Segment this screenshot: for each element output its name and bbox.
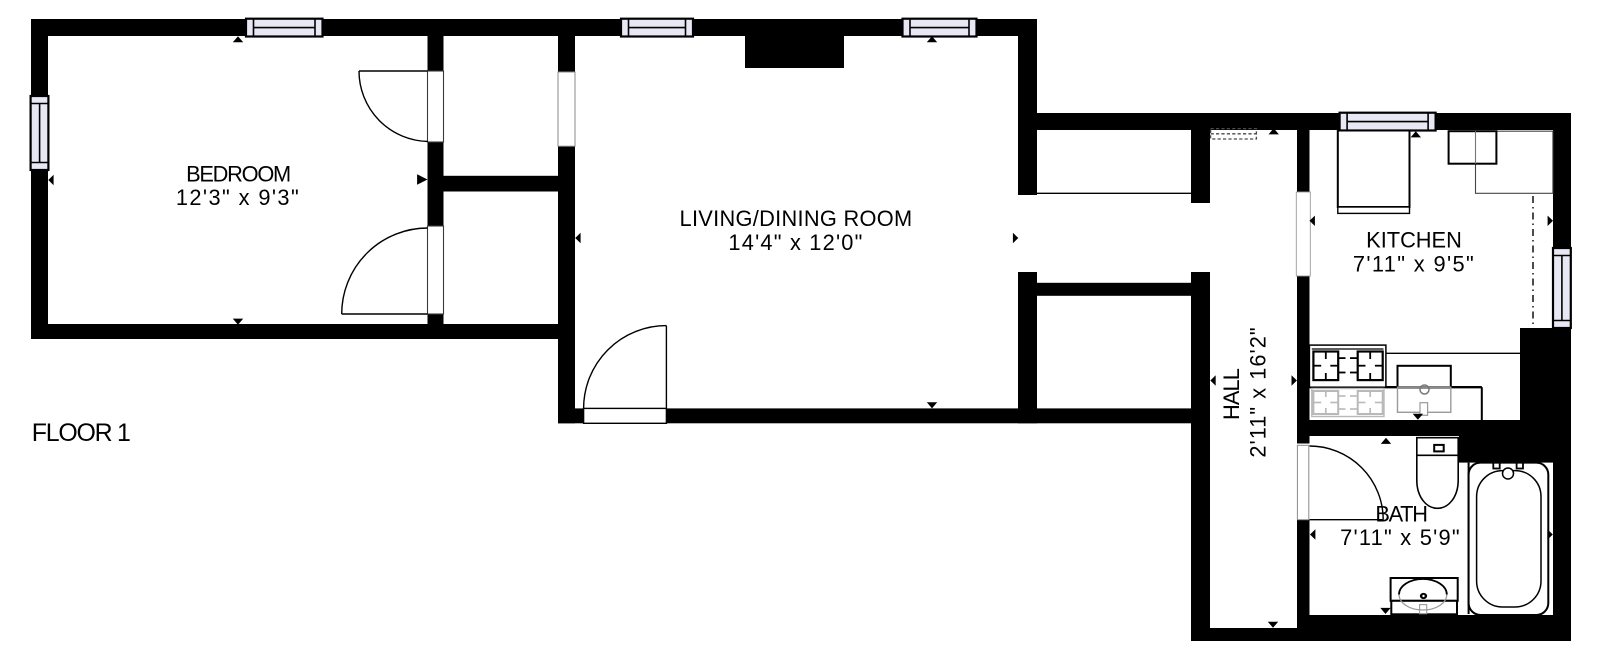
svg-text:14'4" x 12'0": 14'4" x 12'0" [728, 230, 863, 255]
svg-text:BEDROOM: BEDROOM [186, 162, 290, 187]
svg-text:HALL: HALL [1219, 368, 1244, 420]
svg-text:FLOOR 1: FLOOR 1 [32, 419, 130, 447]
svg-text:LIVING/DINING ROOM: LIVING/DINING ROOM [680, 206, 913, 231]
svg-text:12'3" x 9'3": 12'3" x 9'3" [176, 185, 300, 210]
svg-text:2'11" x 16'2": 2'11" x 16'2" [1246, 326, 1271, 457]
svg-text:BATH: BATH [1375, 502, 1426, 527]
svg-text:7'11" x 5'9": 7'11" x 5'9" [1340, 525, 1461, 550]
svg-text:7'11" x 9'5": 7'11" x 9'5" [1353, 252, 1475, 277]
svg-text:KITCHEN: KITCHEN [1366, 228, 1462, 253]
